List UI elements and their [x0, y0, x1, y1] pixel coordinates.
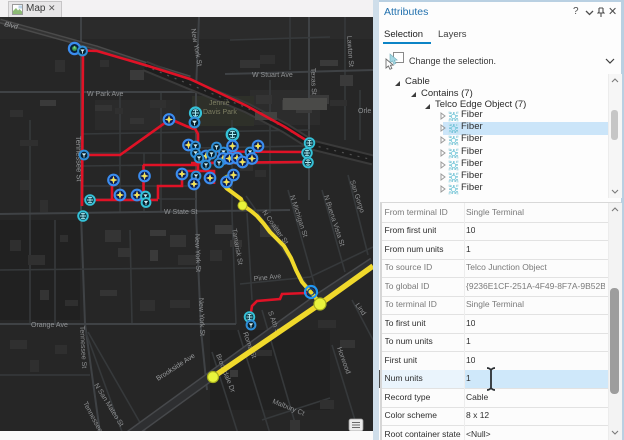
svg-text:W Park Ave: W Park Ave [87, 91, 124, 98]
svg-text:W Stuart Ave: W Stuart Ave [252, 72, 293, 79]
svg-text:W State St: W State St [164, 209, 198, 216]
svg-text:Davis Park: Davis Park [203, 109, 237, 116]
svg-text:Texas St: Texas St [309, 68, 317, 95]
svg-text:New York St: New York St [197, 298, 205, 336]
svg-text:New York St: New York St [193, 234, 201, 272]
svg-text:Orle: Orle [358, 108, 371, 115]
svg-text:Jennie: Jennie [209, 100, 230, 107]
svg-text:Orange Ave: Orange Ave [31, 322, 68, 329]
